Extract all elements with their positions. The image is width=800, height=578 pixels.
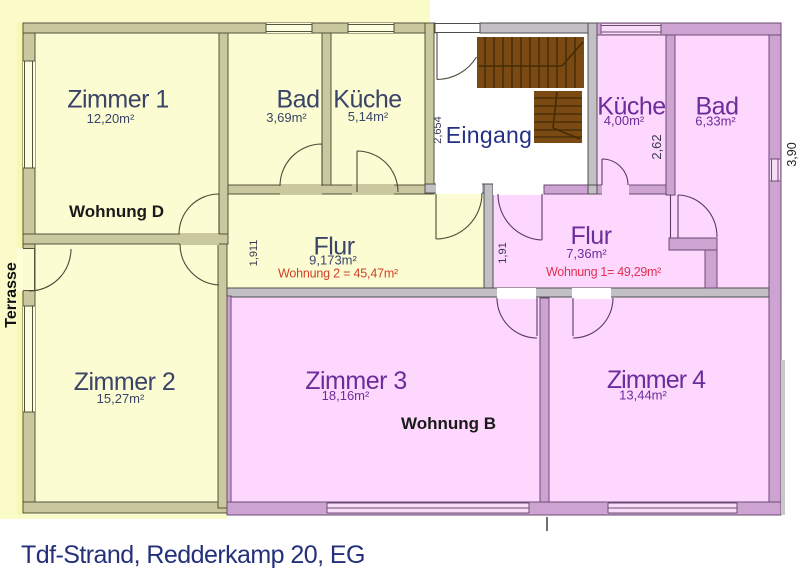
svg-text:15,27m²: 15,27m²	[97, 391, 145, 406]
svg-text:12,20m²: 12,20m²	[87, 111, 135, 126]
svg-text:9,173m²: 9,173m²	[309, 253, 357, 268]
svg-text:13,44m²: 13,44m²	[619, 388, 667, 403]
svg-text:Wohnung B: Wohnung B	[401, 414, 496, 433]
svg-text:18,16m²: 18,16m²	[322, 388, 370, 403]
svg-text:3,90: 3,90	[785, 142, 799, 166]
svg-text:4,00m²: 4,00m²	[604, 113, 645, 128]
svg-text:Tdf-Strand, Redderkamp 20, EG: Tdf-Strand, Redderkamp 20, EG	[21, 541, 365, 569]
svg-text:1,911: 1,911	[248, 240, 260, 267]
svg-text:6,33m²: 6,33m²	[695, 114, 736, 129]
svg-text:Eingang: Eingang	[446, 122, 533, 148]
svg-text:Wohnung D: Wohnung D	[69, 202, 164, 221]
svg-text:1,91: 1,91	[497, 242, 509, 263]
svg-text:Zimmer 1: Zimmer 1	[67, 86, 169, 114]
svg-text:Wohnung 2 = 45,47m²: Wohnung 2 = 45,47m²	[278, 267, 398, 281]
svg-text:5,14m²: 5,14m²	[348, 109, 389, 124]
svg-text:3,69m²: 3,69m²	[266, 110, 307, 125]
svg-text:2,654: 2,654	[432, 116, 444, 144]
svg-text:Terrasse: Terrasse	[3, 262, 20, 328]
svg-text:7,36m²: 7,36m²	[566, 246, 607, 261]
svg-text:2,62: 2,62	[649, 134, 664, 159]
svg-text:Wohnung 1= 49,29m²: Wohnung 1= 49,29m²	[546, 265, 661, 279]
